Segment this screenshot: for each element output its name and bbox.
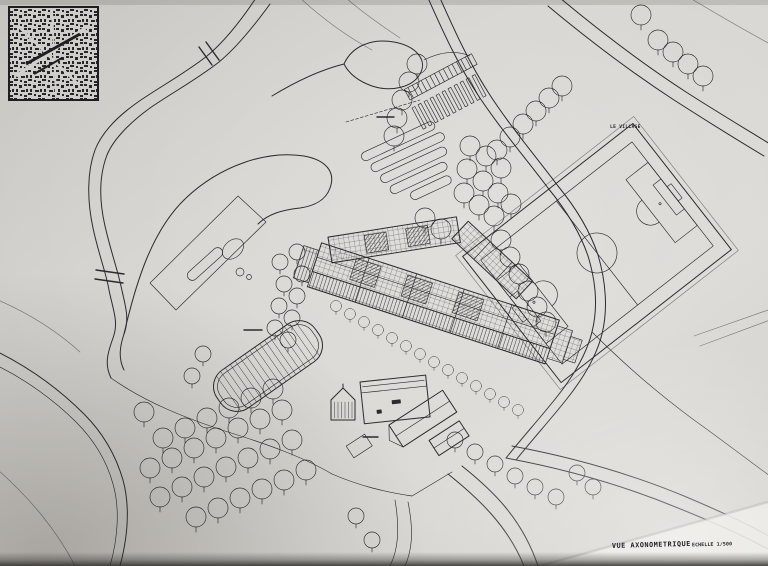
page-edge [0,0,768,566]
bottom-shadow [0,552,768,566]
site-plan-drawing: LE VILLAGE VUE AXONOMETRIQUE ECHELLE 1/5… [0,0,768,566]
drawing-scale: ECHELLE 1/500 [692,541,732,548]
scanned-axonometric-site-plan: LE VILLAGE VUE AXONOMETRIQUE ECHELLE 1/5… [0,0,768,566]
